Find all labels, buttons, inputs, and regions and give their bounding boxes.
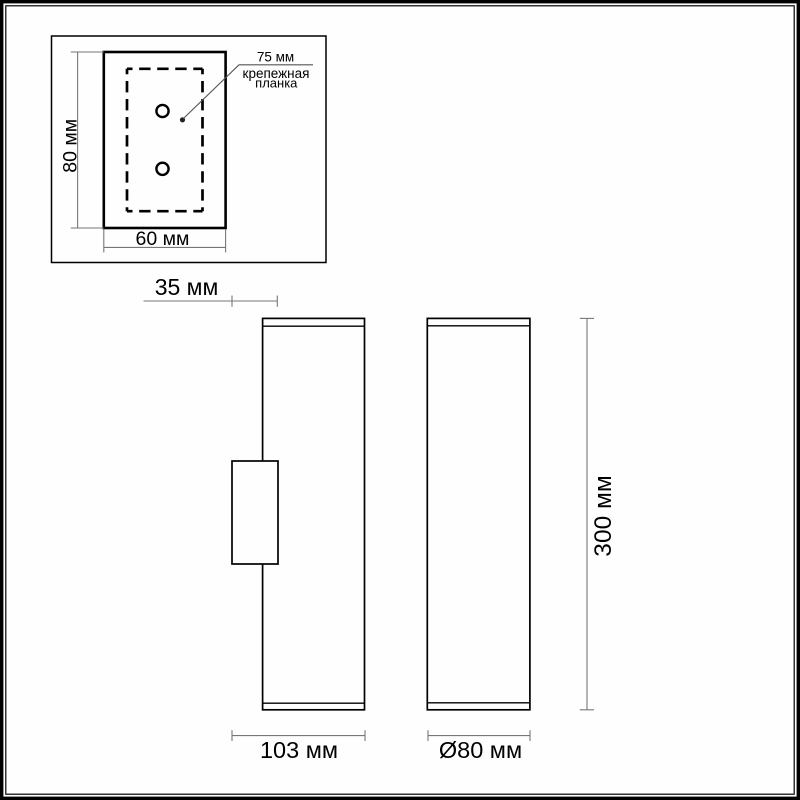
svg-text:планка: планка	[255, 76, 298, 91]
svg-text:60 мм: 60 мм	[136, 228, 190, 250]
svg-text:300 мм: 300 мм	[590, 475, 617, 556]
svg-text:75 мм: 75 мм	[257, 50, 294, 65]
svg-text:103 мм: 103 мм	[260, 737, 338, 763]
svg-text:80 мм: 80 мм	[60, 119, 82, 173]
svg-text:35 мм: 35 мм	[155, 274, 219, 300]
svg-text:Ø80 мм: Ø80 мм	[439, 737, 522, 763]
